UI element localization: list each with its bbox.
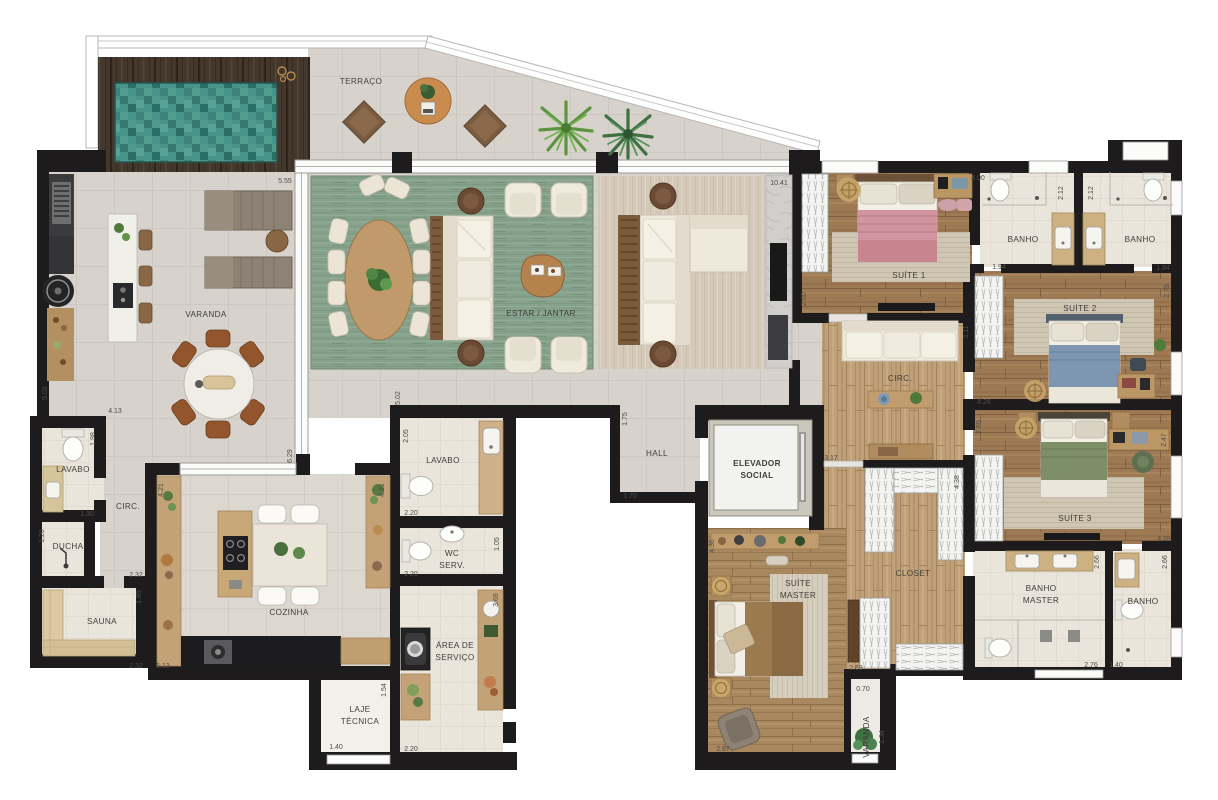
svg-text:2.12: 2.12	[1088, 186, 1095, 200]
svg-text:10.41: 10.41	[770, 180, 788, 187]
svg-text:4.36: 4.36	[709, 539, 716, 553]
svg-text:2.60: 2.60	[801, 292, 808, 306]
svg-text:2.32: 2.32	[129, 663, 143, 670]
svg-text:COZINHA: COZINHA	[269, 608, 308, 617]
svg-text:CIRC.: CIRC.	[116, 502, 140, 511]
svg-text:ELEVADOR: ELEVADOR	[733, 459, 781, 468]
svg-text:4.28: 4.28	[1157, 536, 1171, 543]
svg-text:0.70: 0.70	[856, 686, 870, 693]
svg-text:TERRAÇO: TERRAÇO	[340, 77, 382, 86]
svg-text:SUÍTE: SUÍTE	[785, 578, 811, 588]
svg-text:1.94: 1.94	[1156, 265, 1170, 272]
svg-text:2.69: 2.69	[849, 665, 863, 672]
svg-text:LAVABO: LAVABO	[426, 456, 460, 465]
svg-text:2.32: 2.32	[129, 572, 143, 579]
svg-text:SUÍTE 3: SUÍTE 3	[1058, 513, 1091, 523]
svg-text:3.11: 3.11	[963, 325, 970, 338]
svg-text:1.54: 1.54	[381, 683, 388, 697]
svg-text:4.28: 4.28	[977, 399, 991, 406]
svg-text:2.20: 2.20	[404, 571, 418, 578]
svg-text:4.21: 4.21	[158, 483, 165, 497]
svg-text:5.02: 5.02	[395, 391, 402, 405]
svg-text:WC: WC	[445, 549, 459, 558]
svg-text:2.87: 2.87	[716, 746, 730, 753]
svg-text:SAUNA: SAUNA	[87, 617, 117, 626]
svg-text:2.12: 2.12	[1058, 186, 1065, 200]
svg-text:VARANDA: VARANDA	[185, 310, 227, 319]
svg-text:1.75: 1.75	[622, 412, 629, 426]
svg-text:LAJE: LAJE	[350, 705, 371, 714]
svg-text:MASTER: MASTER	[1023, 596, 1059, 605]
svg-text:2.20: 2.20	[404, 746, 418, 753]
svg-text:BANHO: BANHO	[1008, 235, 1039, 244]
svg-text:1.70: 1.70	[623, 493, 637, 500]
svg-text:SUÍTE 1: SUÍTE 1	[892, 270, 925, 280]
svg-text:CIRC.: CIRC.	[888, 374, 912, 383]
svg-text:BANHO: BANHO	[1125, 235, 1156, 244]
svg-text:5.13: 5.13	[156, 663, 170, 670]
svg-text:LAVABO: LAVABO	[56, 465, 90, 474]
svg-text:1.40: 1.40	[1109, 662, 1123, 669]
svg-text:4.00: 4.00	[971, 175, 985, 182]
svg-text:1.94: 1.94	[992, 264, 1006, 271]
svg-text:4.38: 4.38	[954, 475, 961, 489]
svg-text:CLOSET: CLOSET	[896, 569, 931, 578]
svg-text:3.17: 3.17	[824, 455, 838, 462]
svg-text:VARANDA: VARANDA	[862, 716, 871, 758]
svg-text:2.60: 2.60	[976, 420, 983, 434]
svg-text:DUCHA: DUCHA	[53, 542, 84, 551]
svg-text:2.66: 2.66	[1094, 555, 1101, 569]
svg-text:TÉCNICA: TÉCNICA	[341, 716, 380, 726]
svg-text:1.05: 1.05	[494, 537, 501, 551]
svg-text:5.55: 5.55	[278, 178, 292, 185]
svg-text:1.98: 1.98	[90, 432, 97, 446]
svg-text:1.40: 1.40	[329, 744, 343, 751]
svg-text:ÁREA DE: ÁREA DE	[436, 640, 474, 650]
svg-text:2.66: 2.66	[1162, 555, 1169, 569]
svg-text:BANHO: BANHO	[1026, 584, 1057, 593]
svg-text:2.47: 2.47	[1161, 433, 1168, 447]
svg-text:2.20: 2.20	[404, 510, 418, 517]
svg-text:HALL: HALL	[646, 449, 668, 458]
svg-text:SERVIÇO: SERVIÇO	[435, 653, 474, 662]
svg-text:1.85: 1.85	[136, 590, 143, 604]
svg-text:5.02: 5.02	[42, 386, 49, 400]
svg-text:2.79: 2.79	[1164, 284, 1171, 298]
svg-text:6.29: 6.29	[287, 449, 294, 463]
svg-text:SOCIAL: SOCIAL	[740, 471, 773, 480]
svg-text:SUÍTE 2: SUÍTE 2	[1063, 303, 1096, 313]
svg-text:1.20: 1.20	[39, 529, 46, 543]
svg-text:3.69: 3.69	[493, 593, 500, 607]
svg-text:1.30: 1.30	[80, 511, 94, 518]
svg-text:4.31: 4.31	[379, 483, 386, 497]
svg-text:2.76: 2.76	[1084, 662, 1098, 669]
svg-text:4.13: 4.13	[108, 408, 122, 415]
svg-text:1.34: 1.34	[879, 730, 886, 744]
svg-text:BANHO: BANHO	[1128, 597, 1159, 606]
svg-text:MASTER: MASTER	[780, 591, 816, 600]
svg-text:SERV.: SERV.	[439, 561, 464, 570]
svg-text:2.05: 2.05	[403, 429, 410, 443]
svg-text:ESTAR / JANTAR: ESTAR / JANTAR	[506, 309, 576, 318]
